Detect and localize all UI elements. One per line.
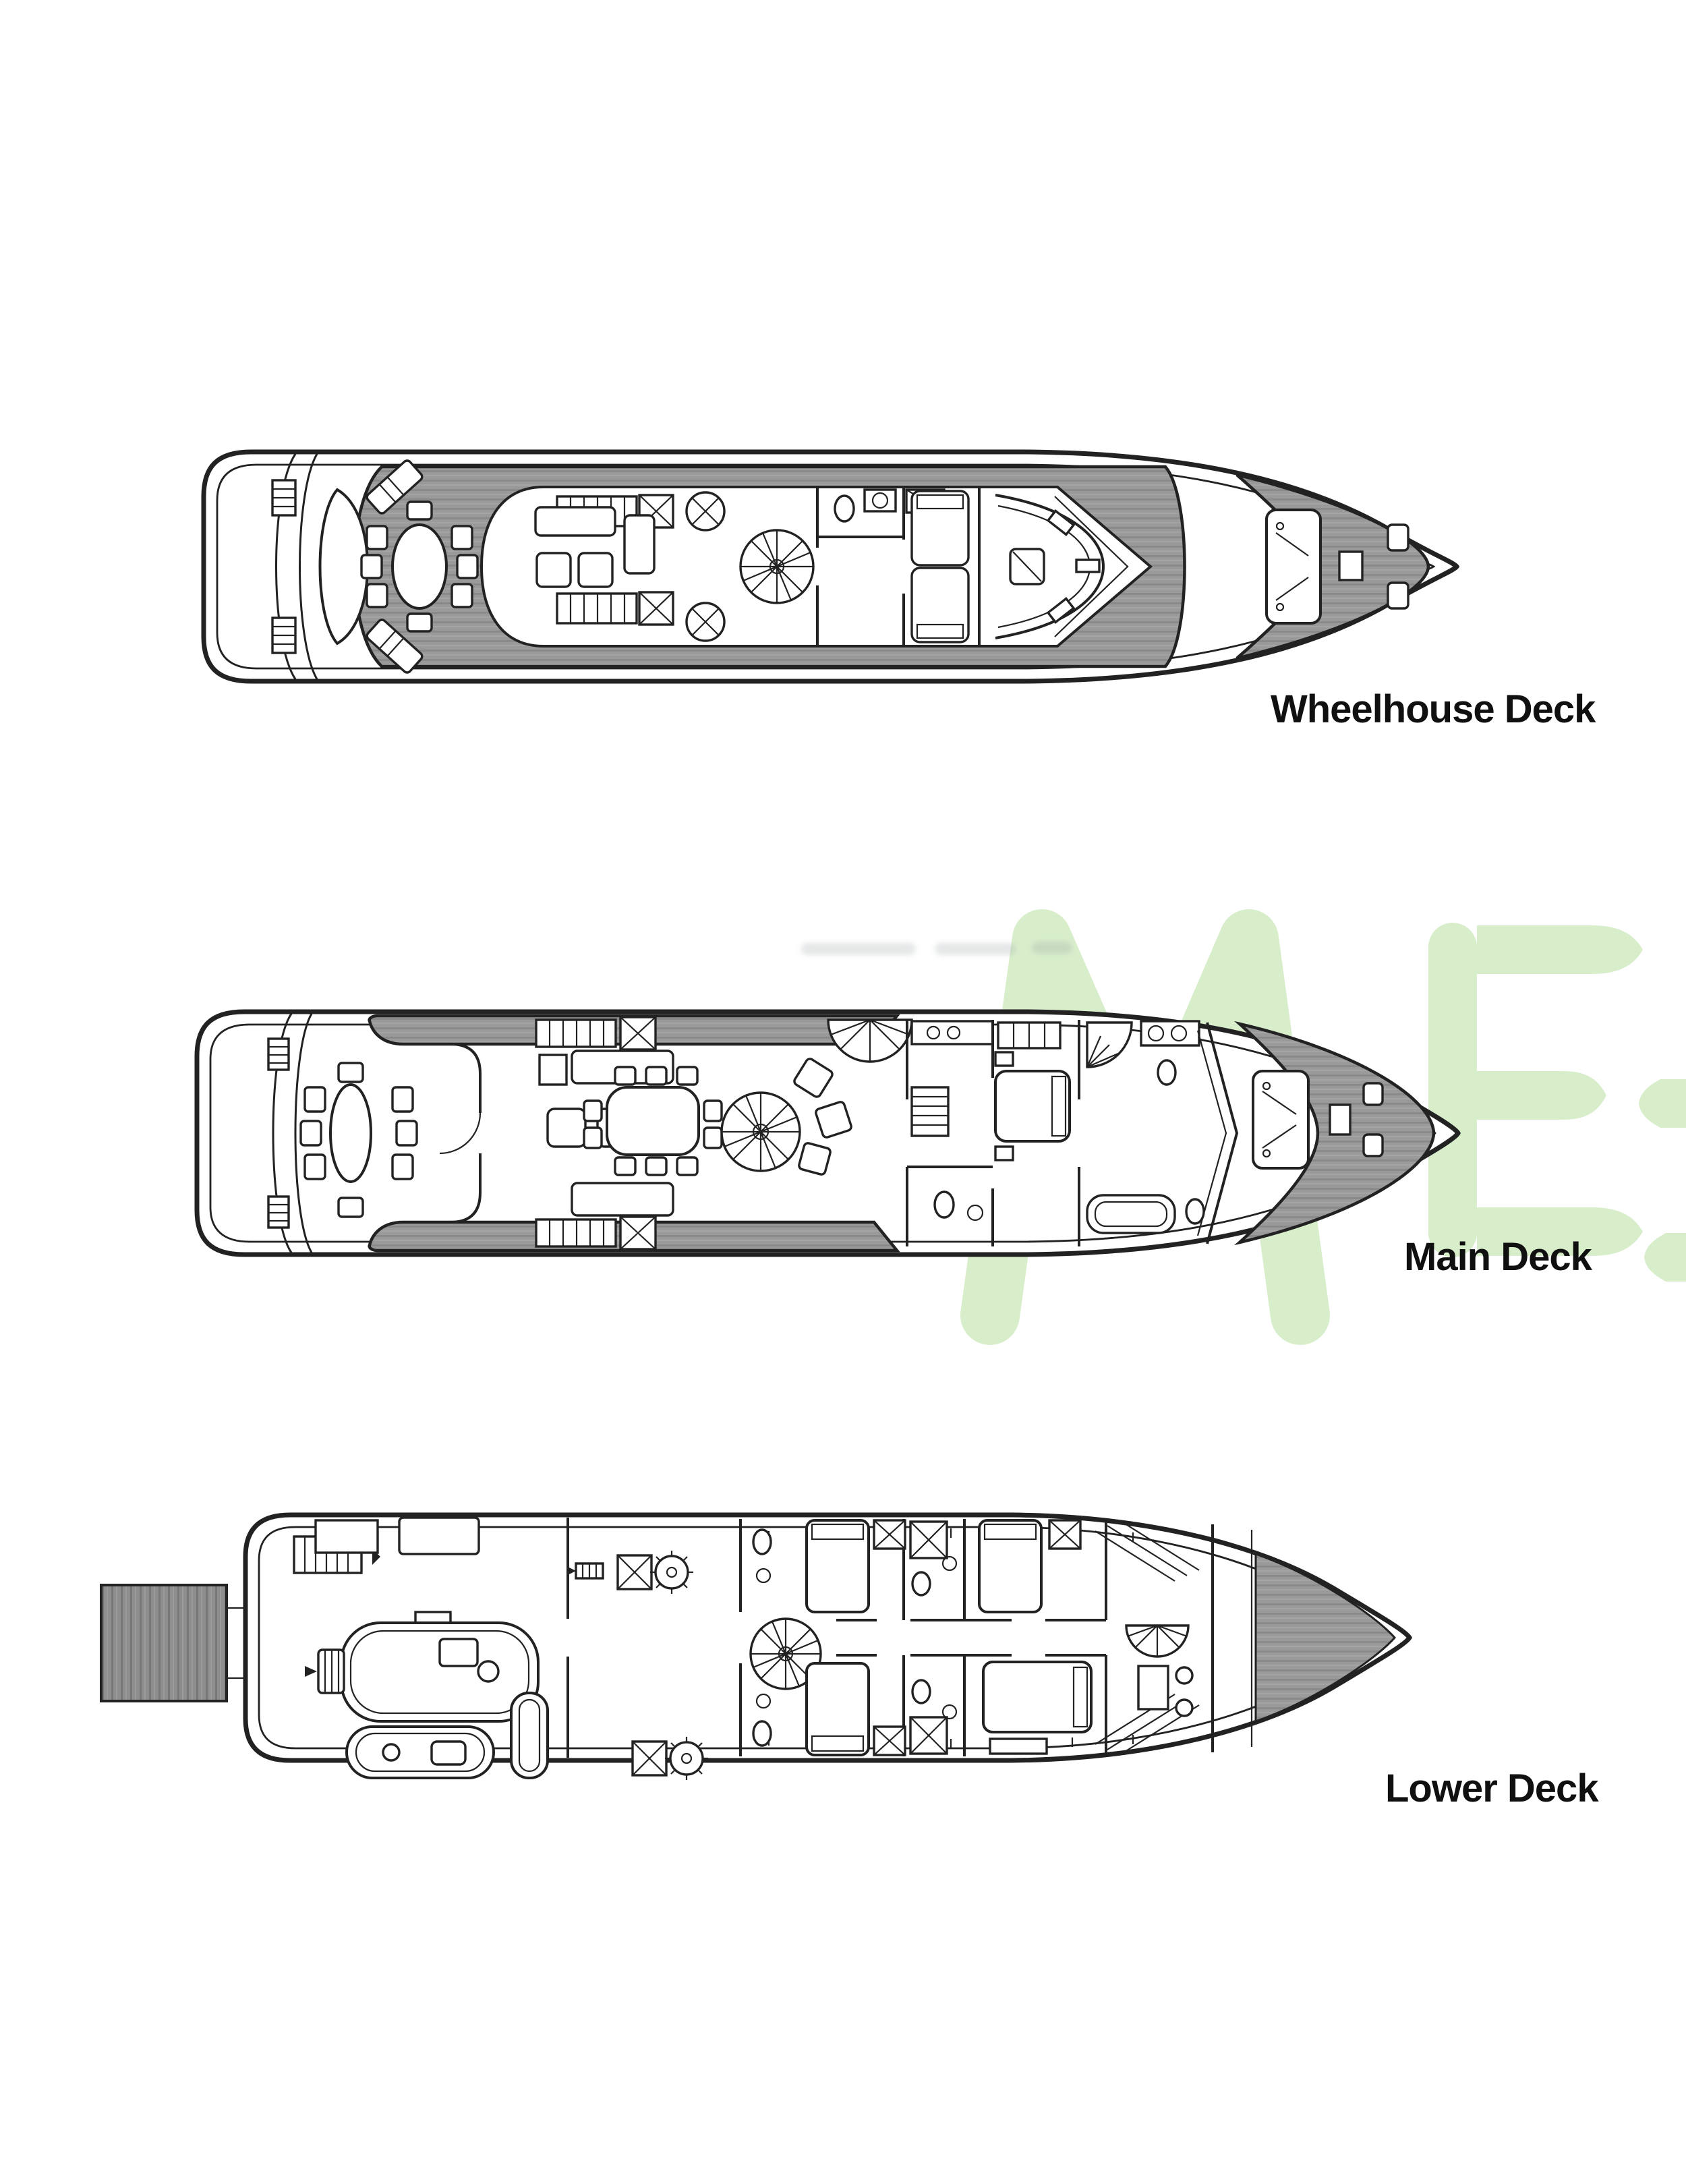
deck-plans-figure <box>0 0 1686 2184</box>
wheelhouse-deck-label: Wheelhouse Deck <box>1271 687 1595 732</box>
watermark-letter-e <box>1428 923 1643 1257</box>
bow-tank-space <box>1256 1554 1395 1721</box>
spiral-staircase <box>740 530 813 603</box>
paddleboard <box>511 1693 548 1778</box>
lower-deck-plan <box>101 1515 1409 1780</box>
main-deck-label: Main Deck <box>1404 1234 1592 1280</box>
lower-deck-label: Lower Deck <box>1385 1766 1598 1811</box>
jet-ski <box>347 1727 494 1778</box>
swim-platform <box>101 1585 227 1701</box>
storage-box <box>316 1520 378 1553</box>
storage-box <box>399 1518 479 1554</box>
main-deck-plan <box>197 1012 1458 1255</box>
deck-plans-page: Wheelhouse Deck Main Deck Lower Deck <box>0 0 1686 2184</box>
spiral-staircase <box>722 1093 800 1171</box>
wheelhouse-deck-plan <box>204 452 1457 681</box>
watermark-edge-fragment <box>1639 1079 1686 1282</box>
